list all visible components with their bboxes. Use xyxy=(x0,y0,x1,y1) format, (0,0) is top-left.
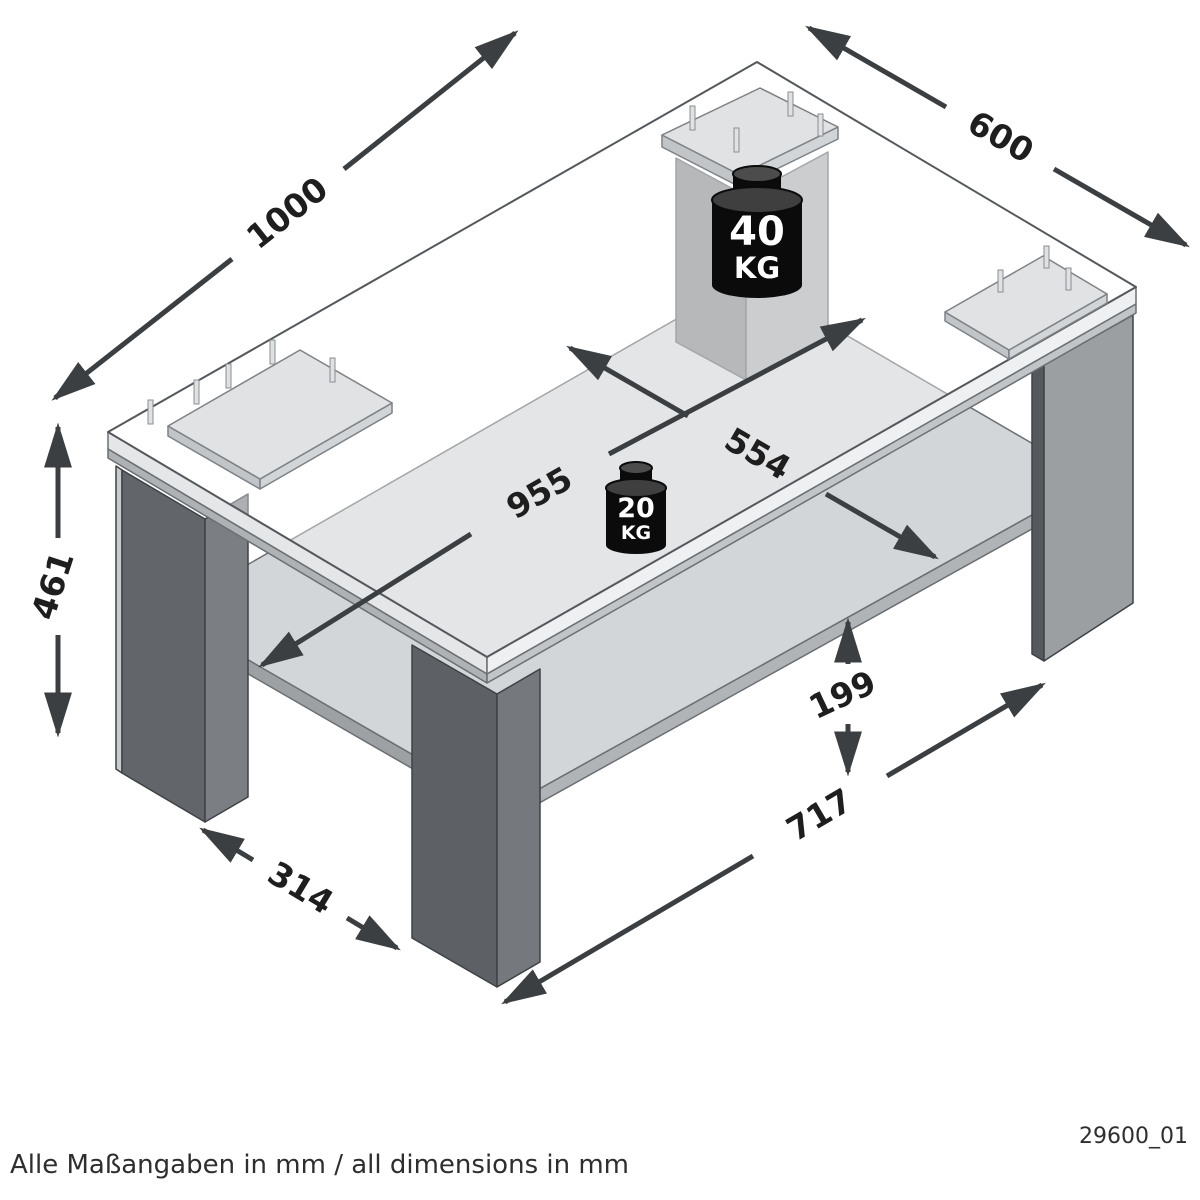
pin xyxy=(194,380,199,404)
pin xyxy=(270,340,275,364)
left-leg-highlight xyxy=(116,466,122,773)
footer-note: Alle Maßangaben in mm / all dimensions i… xyxy=(10,1150,629,1180)
dim-label-leg-span-length: 717 xyxy=(780,780,859,849)
pin xyxy=(226,364,231,388)
pin xyxy=(690,106,695,130)
right-leg xyxy=(1032,315,1133,661)
right-leg-front-face xyxy=(1044,315,1133,661)
weight-40-value: 40 xyxy=(729,209,785,255)
pin xyxy=(1066,268,1071,290)
right-leg-edge-face xyxy=(1032,358,1044,661)
weight-40-unit: KG xyxy=(734,251,780,285)
weight-20-unit: KG xyxy=(621,522,651,544)
drawing-page: 40 KG 20 KG 1000 600 461 955 554 xyxy=(0,0,1200,1200)
pin xyxy=(1044,246,1049,268)
dimension-height: 461 xyxy=(23,427,81,733)
front-leg xyxy=(412,645,540,987)
dim-label-height: 461 xyxy=(23,547,81,625)
dim-label-shelf-clearance: 199 xyxy=(803,662,882,726)
pin xyxy=(818,114,823,136)
weight-20-value: 20 xyxy=(617,493,655,524)
drawing-number: 29600_01 xyxy=(1079,1124,1188,1149)
front-leg-front-face xyxy=(412,645,497,987)
dim-label-top-depth: 600 xyxy=(961,103,1040,171)
pin xyxy=(148,400,153,424)
dim-label-leg-span-depth: 314 xyxy=(261,853,340,922)
pin xyxy=(788,92,793,116)
weight-20-knob-top xyxy=(620,462,652,474)
pin xyxy=(330,358,335,382)
dimension-drawing: 40 KG 20 KG 1000 600 461 955 554 xyxy=(0,0,1200,1200)
dim-label-top-length: 1000 xyxy=(239,169,335,257)
weight-40-knob-top xyxy=(733,166,781,182)
left-leg-side-face xyxy=(205,494,248,822)
left-leg-front-face xyxy=(122,470,205,822)
pin xyxy=(998,270,1003,292)
front-leg-side-face xyxy=(497,669,540,987)
pin xyxy=(734,128,739,152)
dimension-leg-span-depth: 314 xyxy=(203,830,397,948)
